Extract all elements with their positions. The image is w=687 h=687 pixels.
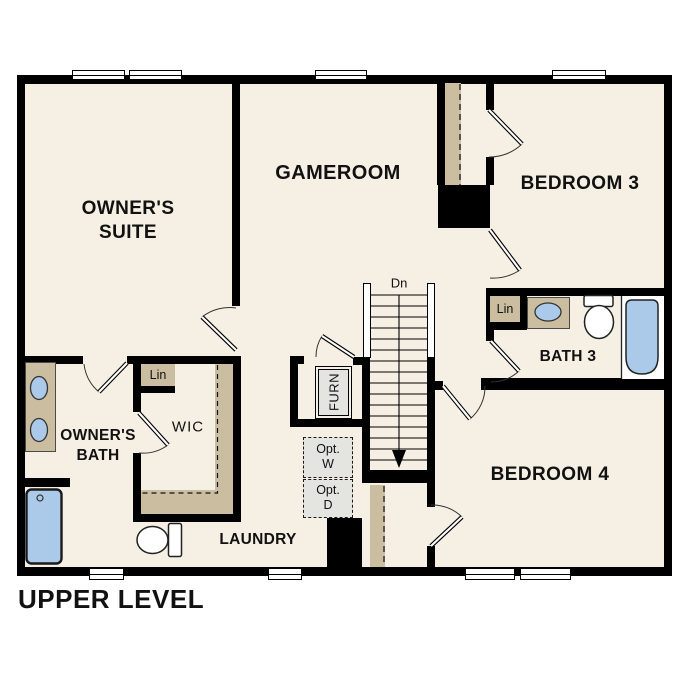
door-arc-owners-bath — [84, 364, 99, 392]
window-owners-suite-2 — [129, 70, 182, 80]
door-arc-bedroom4-left — [431, 505, 462, 517]
furnace-label: FURN — [327, 373, 342, 411]
window-gameroom — [315, 70, 367, 80]
owners-toilet-bowl — [137, 527, 168, 554]
door-leaf-owners-suite — [202, 317, 236, 350]
door-leaf-bedroom4-left — [431, 517, 462, 546]
vanity-sink-1 — [31, 377, 48, 400]
wic-label: WIC — [172, 419, 204, 436]
stair-down-arrow — [392, 450, 406, 468]
window-bedroom4-1 — [465, 568, 515, 580]
door-arc-bedroom4-top — [470, 386, 485, 419]
bath3-label: BATH 3 — [540, 347, 597, 367]
door-arc-bedroom3 — [489, 144, 522, 157]
optional-washer-label: Opt. W — [316, 442, 340, 472]
plan-title: UPPER LEVEL — [18, 584, 204, 615]
door-leaf-owners-bath — [99, 363, 127, 392]
door-arc-bath3-hall — [490, 270, 520, 278]
linen-wic-label: Lin — [150, 368, 167, 382]
owners-bath-label: OWNER'S BATH — [60, 426, 136, 466]
bathtub — [626, 300, 658, 374]
owners-suite-label: OWNER'S SUITE — [82, 197, 175, 245]
linen-bath3-label: Lin — [497, 302, 514, 316]
shower — [27, 490, 62, 564]
door-leaf-bedroom4-top — [443, 386, 470, 419]
laundry-label: LAUNDRY — [219, 530, 296, 550]
bath3-toilet-bowl — [585, 306, 614, 339]
window-owners-suite-1 — [72, 70, 125, 80]
door-leaf-furnace — [322, 336, 354, 357]
stairs-down-label: Dn — [391, 276, 408, 291]
vanity-sink-2 — [31, 419, 48, 442]
door-arc-bath3 — [491, 371, 519, 382]
window-bedroom3 — [552, 70, 606, 80]
window-bedroom4-2 — [520, 568, 571, 580]
optional-dryer-label: Opt. D — [316, 483, 340, 513]
door-leaf-bath3-hall — [490, 230, 520, 270]
gameroom-label: GAMEROOM — [275, 161, 400, 185]
bedroom3-label: BEDROOM 3 — [521, 172, 640, 196]
door-leaf-wic — [139, 413, 168, 445]
door-arc-furnace — [316, 336, 322, 357]
door-arc-wic — [139, 445, 168, 453]
floor-plan: OWNER'S SUITE GAMEROOM BEDROOM 3 BATH 3 … — [0, 0, 687, 687]
bedroom4-label: BEDROOM 4 — [491, 463, 610, 487]
owners-toilet-tank — [169, 524, 182, 557]
window-owners-bath — [89, 568, 124, 580]
door-leaf-bedroom3 — [489, 110, 522, 144]
door-arc-owners-suite — [202, 308, 236, 317]
bath3-sink — [535, 303, 561, 321]
window-laundry — [268, 568, 302, 580]
door-leaf-bath3 — [491, 341, 519, 371]
